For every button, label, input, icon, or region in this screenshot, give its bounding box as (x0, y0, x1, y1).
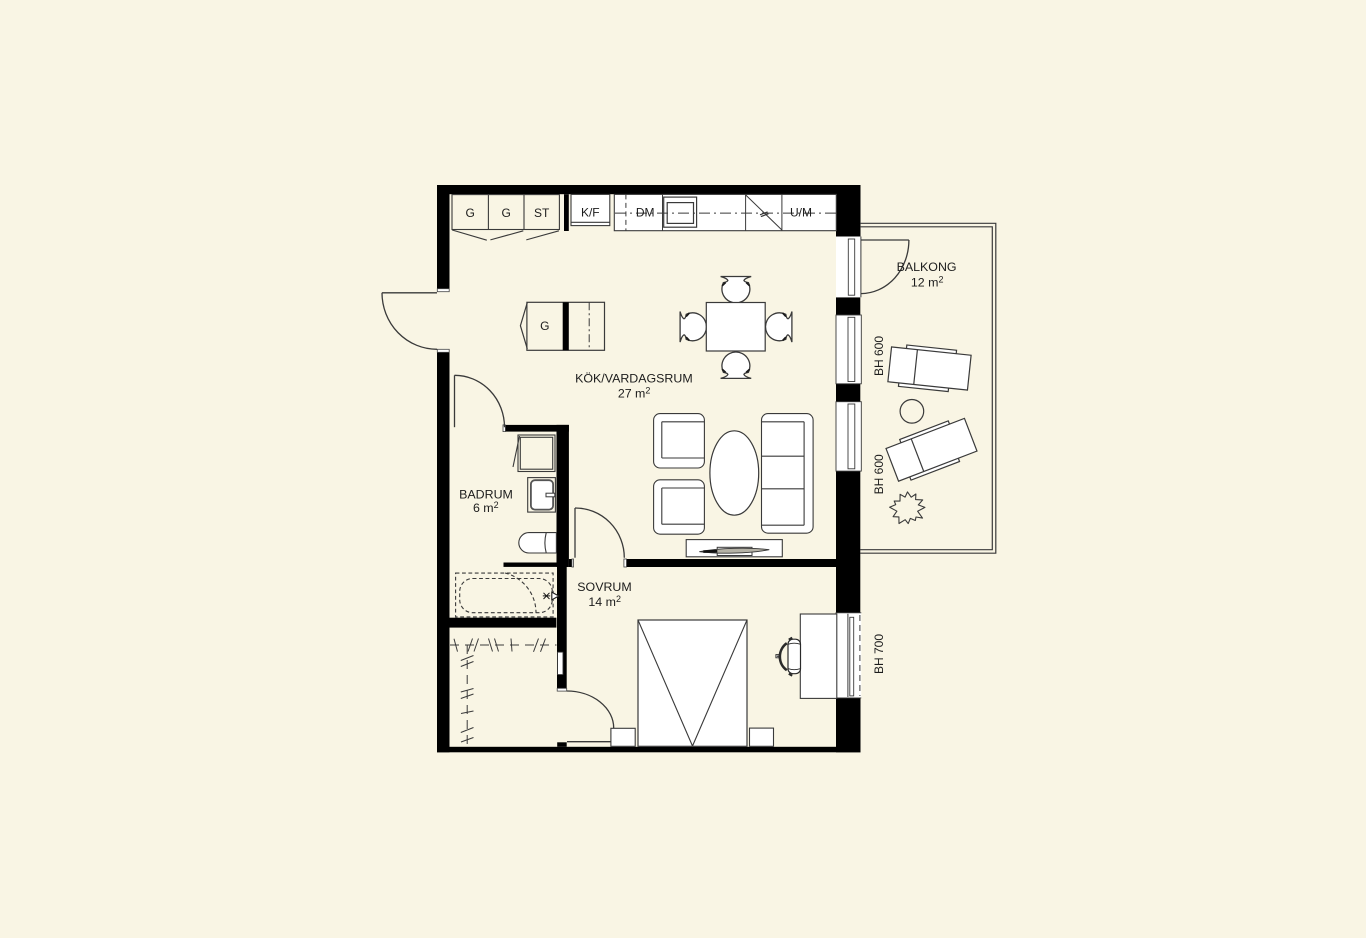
svg-text:G: G (502, 206, 511, 220)
svg-text:G: G (540, 319, 549, 333)
svg-text:G: G (466, 206, 475, 220)
svg-text:BADRUM: BADRUM (459, 487, 513, 501)
svg-text:BH 600: BH 600 (872, 336, 886, 376)
svg-text:BH 600: BH 600 (872, 454, 886, 494)
svg-text:K/F: K/F (581, 206, 600, 220)
svg-text:U/M: U/M (790, 206, 812, 220)
svg-text:SOVRUM: SOVRUM (577, 580, 631, 594)
svg-text:BALKONG: BALKONG (897, 260, 957, 274)
svg-text:BH 700: BH 700 (872, 634, 886, 674)
svg-text:KÖK/VARDAGSRUM: KÖK/VARDAGSRUM (575, 371, 693, 385)
svg-text:DM: DM (636, 206, 655, 220)
svg-text:ST: ST (534, 206, 550, 220)
